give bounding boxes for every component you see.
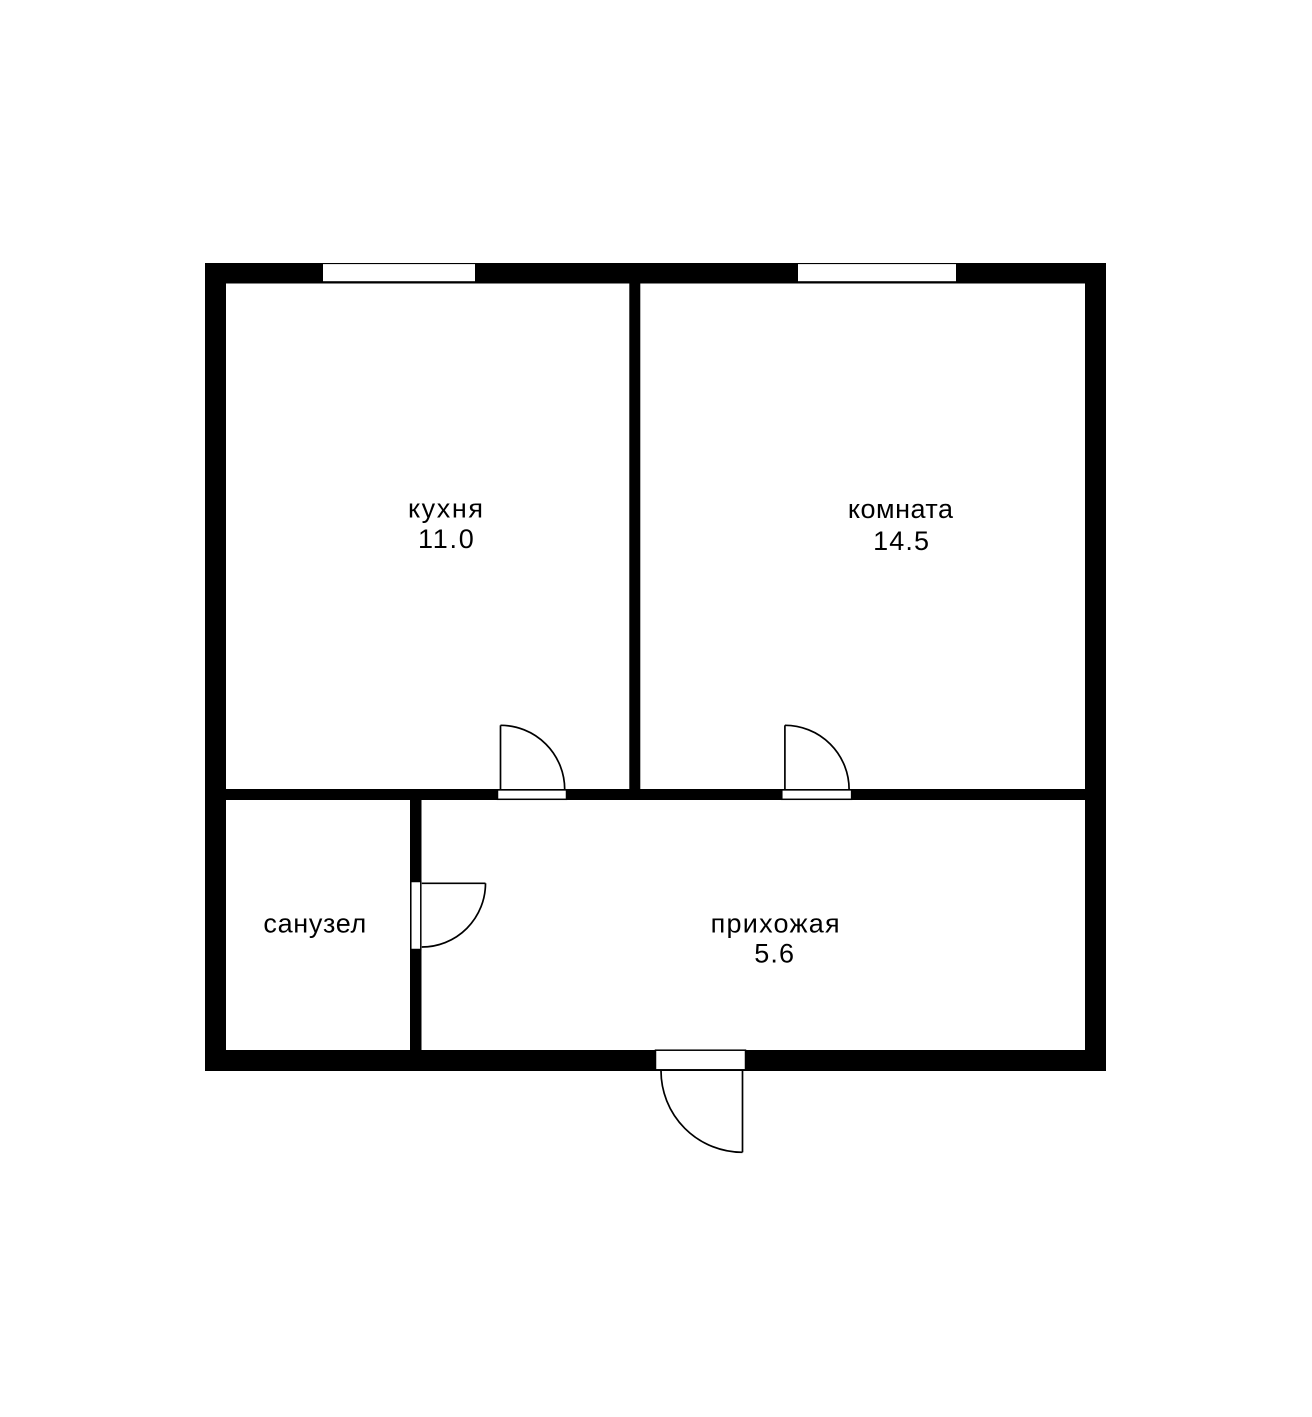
svg-text:прихожая: прихожая	[711, 909, 841, 939]
svg-text:5.6: 5.6	[754, 938, 795, 968]
svg-text:санузел: санузел	[263, 909, 367, 939]
svg-text:11.0: 11.0	[418, 524, 476, 554]
svg-text:14.5: 14.5	[873, 526, 930, 556]
svg-text:кухня: кухня	[408, 494, 485, 524]
svg-text:комната: комната	[848, 494, 954, 524]
